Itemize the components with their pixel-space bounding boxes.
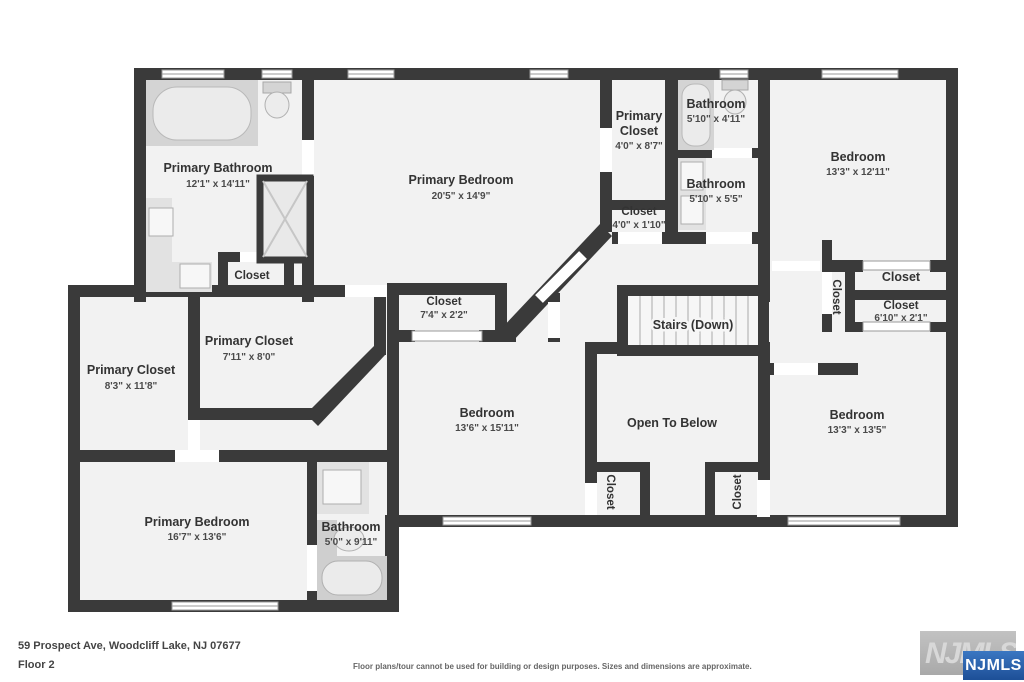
label-bedroom-middle: Bedroom xyxy=(460,406,515,420)
label-closet-hall: Closet xyxy=(621,206,656,218)
label-closet-vertical-right: Closet xyxy=(830,279,842,314)
label-bathroom-mid: Bathroom xyxy=(686,177,745,191)
label-bathroom-bottom: Bathroom xyxy=(321,520,380,534)
dims-bathroom-mid: 5'10" x 5'5" xyxy=(689,194,742,205)
disclaimer-text: Floor plans/tour cannot be used for buil… xyxy=(353,662,752,671)
dims-closet-610: 6'10" x 2'1" xyxy=(874,313,927,324)
bathtub-icon xyxy=(322,561,382,595)
toilet-bowl-icon xyxy=(265,92,289,118)
label-closet-otb-right: Closet xyxy=(732,474,744,509)
dims-primary-bedroom-bottom: 16'7" x 13'6" xyxy=(168,532,227,543)
dims-bedroom-top-right: 13'3" x 12'11" xyxy=(826,167,890,178)
dims-closet-mid: 7'4" x 2'2" xyxy=(420,310,468,321)
njmls-logo: NJMLS xyxy=(963,651,1024,680)
floor-plan-drawing: Primary Bathroom 12'1" x 14'11" Closet P… xyxy=(0,0,1024,682)
dims-primary-closet-mid: 7'11" x 8'0" xyxy=(223,352,276,363)
label-primary-closet-hall-2: Closet xyxy=(620,124,659,138)
label-closet-mid: Closet xyxy=(426,296,461,308)
label-bathroom-closet: Closet xyxy=(234,270,269,282)
floor-plan-page: Primary Bathroom 12'1" x 14'11" Closet P… xyxy=(0,0,1024,682)
dims-primary-bedroom-top: 20'5" x 14'9" xyxy=(432,191,491,202)
address-text: 59 Prospect Ave, Woodcliff Lake, NJ 0767… xyxy=(18,640,241,652)
label-primary-closet-hall-1: Primary xyxy=(616,109,663,123)
label-closet-610: Closet xyxy=(883,300,918,312)
sink-icon xyxy=(149,208,173,236)
dims-bathroom-bottom: 5'0" x 9'11" xyxy=(325,537,378,548)
label-closet-top-right: Closet xyxy=(882,270,921,284)
label-primary-bedroom-top: Primary Bedroom xyxy=(409,173,514,187)
floor-label: Floor 2 xyxy=(18,659,55,671)
label-closet-otb-left: Closet xyxy=(604,474,616,509)
dims-bathroom-top: 5'10" x 4'11" xyxy=(687,114,745,125)
label-primary-closet-mid: Primary Closet xyxy=(205,334,294,348)
label-primary-bedroom-bottom: Primary Bedroom xyxy=(145,515,250,529)
dims-primary-closet-hall: 4'0" x 8'7" xyxy=(615,141,663,152)
sink-icon xyxy=(180,264,210,288)
dims-primary-closet-left: 8'3" x 11'8" xyxy=(105,381,158,392)
sink-icon xyxy=(323,470,361,504)
toilet-tank-icon xyxy=(263,82,291,93)
dims-bedroom-bottom-right: 13'3" x 13'5" xyxy=(828,425,887,436)
label-bedroom-top-right: Bedroom xyxy=(831,150,886,164)
dims-bedroom-middle: 13'6" x 15'11" xyxy=(455,423,519,434)
toilet-tank-icon xyxy=(722,80,748,90)
dims-primary-bathroom: 12'1" x 14'11" xyxy=(186,179,250,190)
label-bathroom-top: Bathroom xyxy=(686,97,745,111)
label-bedroom-bottom-right: Bedroom xyxy=(830,408,885,422)
dims-closet-hall: 4'0" x 1'10" xyxy=(612,220,665,231)
label-stairs: Stairs (Down) xyxy=(653,318,734,332)
label-primary-closet-left: Primary Closet xyxy=(87,363,176,377)
label-open-to-below: Open To Below xyxy=(627,416,717,430)
label-primary-bathroom: Primary Bathroom xyxy=(163,161,272,175)
bathtub-icon xyxy=(153,87,251,140)
